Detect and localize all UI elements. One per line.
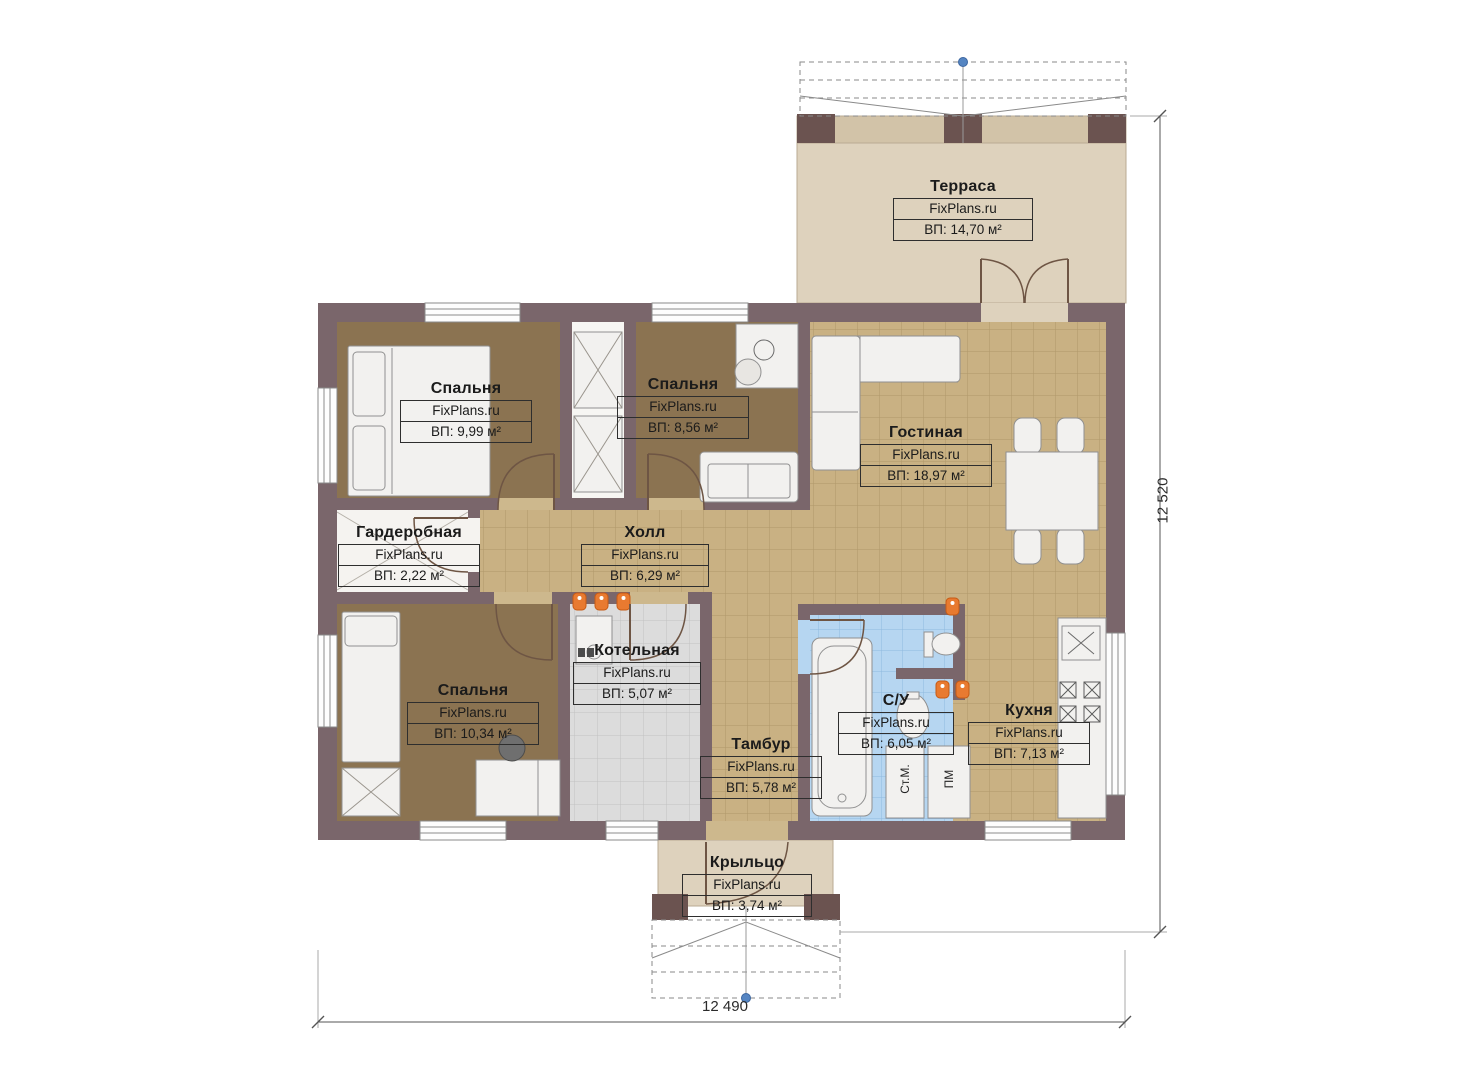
room-name: Кухня xyxy=(968,702,1090,720)
room-name: Спальня xyxy=(400,380,532,398)
room-label-bedroom-1: Спальня FixPlans.ru ВП: 9,99 м² xyxy=(400,380,532,443)
radiator-icon xyxy=(573,593,586,610)
room-label-bathroom: С/У FixPlans.ru ВП: 6,05 м² xyxy=(838,692,954,755)
room-info-box: FixPlans.ru ВП: 5,07 м² xyxy=(573,662,701,705)
room-brand: FixPlans.ru xyxy=(683,875,811,895)
room-label-bedroom-2: Спальня FixPlans.ru ВП: 8,56 м² xyxy=(617,376,749,439)
room-label-wardrobe: Гардеробная FixPlans.ru ВП: 2,22 м² xyxy=(338,524,480,587)
room-brand: FixPlans.ru xyxy=(401,401,531,421)
window-living-right xyxy=(1106,633,1125,795)
sofa-small xyxy=(700,452,798,502)
room-label-vestibule: Тамбур FixPlans.ru ВП: 5,78 м² xyxy=(700,736,822,799)
room-info-box: FixPlans.ru ВП: 7,13 м² xyxy=(968,722,1090,765)
floor-plan-drawing xyxy=(0,0,1474,1080)
room-name: Гардеробная xyxy=(338,524,480,542)
room-name: Терраса xyxy=(893,178,1033,196)
window-bedroom-1-left xyxy=(318,388,337,483)
room-area: ВП: 5,78 м² xyxy=(701,777,821,798)
room-brand: FixPlans.ru xyxy=(894,199,1032,219)
room-area: ВП: 10,34 м² xyxy=(408,723,538,744)
radiator-icon xyxy=(956,681,969,698)
radiator-icon xyxy=(946,598,959,615)
room-name: Котельная xyxy=(573,642,701,660)
dimension-vertical: 12 520 xyxy=(1155,456,1172,546)
room-info-box: FixPlans.ru ВП: 6,05 м² xyxy=(838,712,954,755)
dishwasher-label: ПМ xyxy=(942,754,956,804)
room-label-porch: Крыльцо FixPlans.ru ВП: 3,74 м² xyxy=(682,854,812,917)
room-brand: FixPlans.ru xyxy=(839,713,953,733)
room-area: ВП: 3,74 м² xyxy=(683,895,811,916)
room-name: Спальня xyxy=(407,682,539,700)
window-bedroom-3-left xyxy=(318,635,337,727)
single-bed xyxy=(342,612,400,762)
wardrobe-box xyxy=(342,768,400,816)
room-info-box: FixPlans.ru ВП: 6,29 м² xyxy=(581,544,709,587)
room-area: ВП: 8,56 м² xyxy=(618,417,748,438)
room-name: Холл xyxy=(581,524,709,542)
room-area: ВП: 2,22 м² xyxy=(339,565,479,586)
room-info-box: FixPlans.ru ВП: 10,34 м² xyxy=(407,702,539,745)
radiator-icon xyxy=(617,593,630,610)
room-name: С/У xyxy=(838,692,954,710)
room-name: Спальня xyxy=(617,376,749,394)
terrace-post xyxy=(1088,114,1126,143)
room-brand: FixPlans.ru xyxy=(582,545,708,565)
room-name: Гостиная xyxy=(860,424,992,442)
radiator-icon xyxy=(595,593,608,610)
room-info-box: FixPlans.ru ВП: 14,70 м² xyxy=(893,198,1033,241)
toilet xyxy=(924,632,960,657)
room-label-living-room: Гостиная FixPlans.ru ВП: 18,97 м² xyxy=(860,424,992,487)
room-area: ВП: 6,29 м² xyxy=(582,565,708,586)
window-kitchen-bottom xyxy=(985,821,1071,840)
room-brand: FixPlans.ru xyxy=(969,723,1089,743)
window-bedroom-1-top xyxy=(425,303,520,322)
axis-marker-top xyxy=(959,58,968,67)
room-brand: FixPlans.ru xyxy=(618,397,748,417)
room-area: ВП: 5,07 м² xyxy=(574,683,700,704)
room-area: ВП: 6,05 м² xyxy=(839,733,953,754)
room-area: ВП: 7,13 м² xyxy=(969,743,1089,764)
room-area: ВП: 18,97 м² xyxy=(861,465,991,486)
window-bedroom-2-top xyxy=(652,303,748,322)
room-brand: FixPlans.ru xyxy=(701,757,821,777)
room-label-boiler-room: Котельная FixPlans.ru ВП: 5,07 м² xyxy=(573,642,701,705)
room-info-box: FixPlans.ru ВП: 8,56 м² xyxy=(617,396,749,439)
window-boiler-bottom xyxy=(606,821,658,840)
desk xyxy=(476,760,560,816)
room-brand: FixPlans.ru xyxy=(339,545,479,565)
room-info-box: FixPlans.ru ВП: 18,97 м² xyxy=(860,444,992,487)
floor-plan: Терраса FixPlans.ru ВП: 14,70 м² Спальня… xyxy=(0,0,1474,1080)
room-info-box: FixPlans.ru ВП: 3,74 м² xyxy=(682,874,812,917)
room-brand: FixPlans.ru xyxy=(408,703,538,723)
washing-machine-label: Ст.М. xyxy=(898,754,912,804)
room-area: ВП: 9,99 м² xyxy=(401,421,531,442)
room-label-hall: Холл FixPlans.ru ВП: 6,29 м² xyxy=(581,524,709,587)
porch-roof-overhang xyxy=(652,906,840,1003)
room-label-bedroom-3: Спальня FixPlans.ru ВП: 10,34 м² xyxy=(407,682,539,745)
room-label-kitchen: Кухня FixPlans.ru ВП: 7,13 м² xyxy=(968,702,1090,765)
window-bedroom-3-bottom xyxy=(420,821,506,840)
room-info-box: FixPlans.ru ВП: 9,99 м² xyxy=(400,400,532,443)
dimension-horizontal: 12 490 xyxy=(655,998,795,1015)
terrace-post xyxy=(797,114,835,143)
room-name: Крыльцо xyxy=(682,854,812,872)
room-area: ВП: 14,70 м² xyxy=(894,219,1032,240)
room-brand: FixPlans.ru xyxy=(574,663,700,683)
room-info-box: FixPlans.ru ВП: 2,22 м² xyxy=(338,544,480,587)
room-brand: FixPlans.ru xyxy=(861,445,991,465)
room-info-box: FixPlans.ru ВП: 5,78 м² xyxy=(700,756,822,799)
room-label-terrace: Терраса FixPlans.ru ВП: 14,70 м² xyxy=(893,178,1033,241)
room-name: Тамбур xyxy=(700,736,822,754)
